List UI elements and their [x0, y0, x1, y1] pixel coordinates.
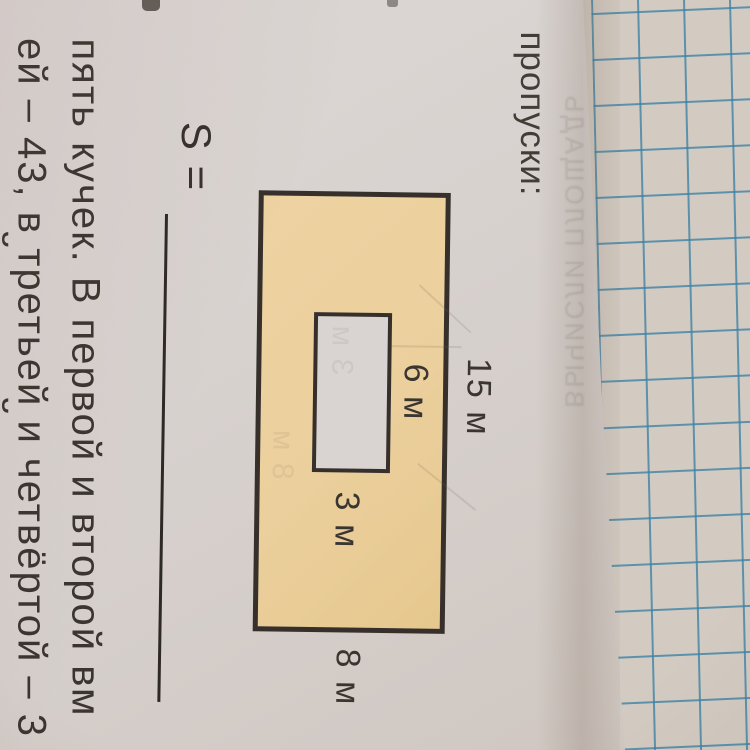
ghost-dimension-label: 3 м: [324, 323, 359, 375]
task-text-line3-partial: й и пятой вместе –: [0, 228, 14, 612]
instruction-text: пропуски:: [512, 31, 552, 196]
task-text-line1: пять кучек. В первой и второй вм: [63, 39, 108, 718]
inner-height-label: 3 м: [326, 491, 366, 549]
cut-off-text-fragment: [142, 0, 160, 11]
bleed-through-text: ВЫЧИСЛИ ПЛОЩАДЬ: [559, 92, 590, 408]
bleed-through-line: [417, 463, 476, 511]
answer-blank-line: [157, 214, 168, 702]
cut-off-text-fragment: [387, 0, 398, 7]
outer-height-label: 8 м: [327, 648, 367, 706]
workbook-photo: пропуски: ВЫЧИСЛИ ПЛОЩАДЬ 15 м 6 м 3 м: [0, 0, 750, 750]
outer-width-label: 15 м: [458, 358, 498, 437]
inner-width-label: 6 м: [395, 363, 435, 421]
task-text-line2: ей – 43, в третьей и четвёртой – 3: [9, 38, 54, 738]
area-formula-label: S =: [172, 122, 220, 192]
geometry-figure: 15 м 6 м 3 м 8 м 8 м 3 м: [241, 178, 519, 750]
bleed-through-line: [419, 284, 472, 333]
ghost-dimension-label: 8 м: [265, 428, 300, 480]
